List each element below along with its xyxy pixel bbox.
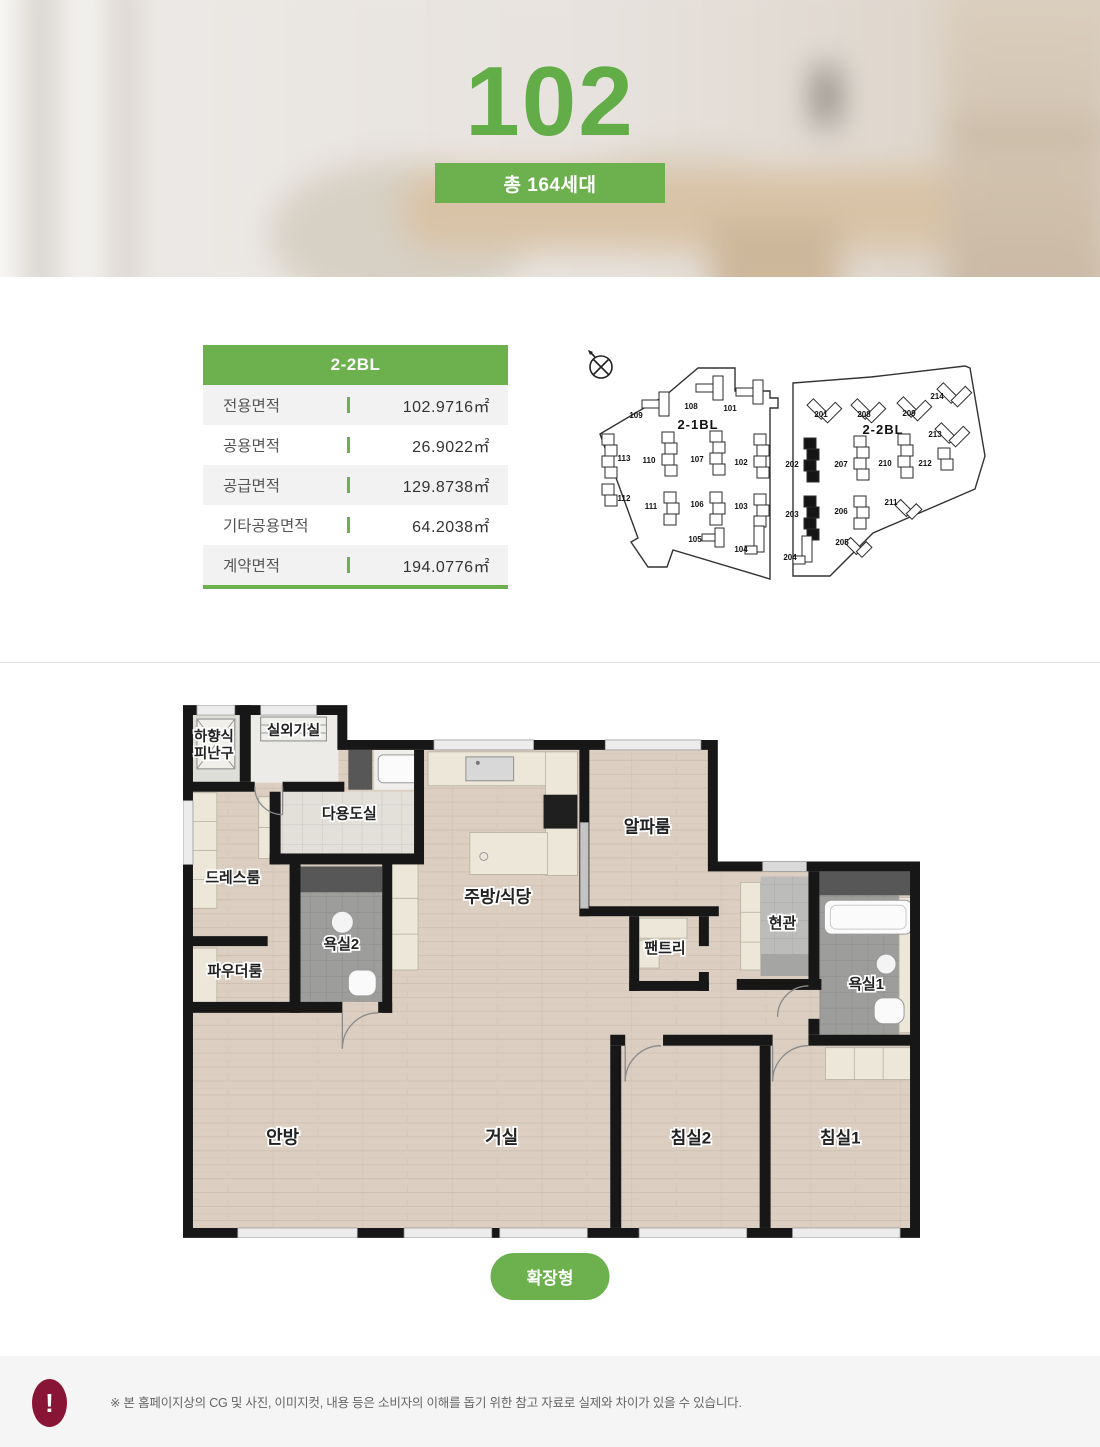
room-label-bath1: 욕실1 xyxy=(848,976,884,993)
building-number-108: 108 xyxy=(684,402,698,411)
room-label-master-bedroom: 안방 xyxy=(266,1127,299,1147)
building-105 xyxy=(702,528,724,547)
cooktop-icon xyxy=(544,795,578,829)
utility-tub-icon xyxy=(378,755,420,783)
site-block-2-1BL: 2-1BL10910810111311010710211211110610310… xyxy=(600,368,778,579)
building-106 xyxy=(710,492,725,525)
room-label-powder-room: 파우더룸 xyxy=(207,963,262,980)
kitchen-sink-icon xyxy=(466,757,514,781)
area-table-body: 전용면적 102.9716㎡ 공용면적 26.9022㎡ 공급면적 129.87… xyxy=(203,385,508,585)
block-name-label: 2-2BL xyxy=(862,422,903,437)
building-number-212: 212 xyxy=(918,459,932,468)
building-212 xyxy=(938,448,953,470)
building-211 xyxy=(895,494,922,521)
room-label-entrance: 현관 xyxy=(769,915,797,932)
building-number-107: 107 xyxy=(690,455,704,464)
building-number-206: 206 xyxy=(834,507,848,516)
building-number-202: 202 xyxy=(785,460,799,469)
block-name-label: 2-1BL xyxy=(677,417,718,432)
building-203 xyxy=(804,496,819,540)
building-109 xyxy=(642,392,669,416)
building-number-205: 205 xyxy=(835,538,849,547)
building-number-112: 112 xyxy=(618,494,631,503)
building-number-204: 204 xyxy=(783,553,797,562)
room-label-dress-room: 드레스룸 xyxy=(205,869,260,886)
building-210 xyxy=(898,434,913,478)
sliding-door xyxy=(580,823,588,909)
building-207 xyxy=(854,436,869,480)
notice-footer: ! ※ 본 홈페이지상의 CG 및 사진, 이미지컷, 내용 등은 소비자의 이… xyxy=(0,1356,1100,1447)
table-row: 공급면적 129.8738㎡ xyxy=(203,465,508,505)
building-111 xyxy=(664,492,679,525)
room-label-bath2: 욕실2 xyxy=(323,936,359,953)
floor-plan: 하향식피난구실외기실다용도실드레스룸파우더룸욕실2주방/식당알파룸팬트리현관욕실… xyxy=(183,705,920,1238)
room-label-alpha-room: 알파룸 xyxy=(624,818,671,837)
section-divider xyxy=(0,662,1100,663)
washbasin-icon xyxy=(876,954,896,974)
building-113 xyxy=(602,434,617,478)
toilet-icon xyxy=(348,970,376,996)
exclamation-icon: ! xyxy=(32,1379,67,1427)
room-label-ac-room: 실외기실 xyxy=(267,721,320,739)
building-214 xyxy=(937,374,972,409)
building-number-207: 207 xyxy=(834,460,848,469)
north-compass-icon xyxy=(588,350,612,378)
building-number-211: 211 xyxy=(885,498,898,507)
building-112 xyxy=(602,484,617,506)
building-number-111: 111 xyxy=(645,502,658,511)
building-number-101: 101 xyxy=(723,404,737,413)
building-number-109: 109 xyxy=(629,411,643,420)
room-label-kitchen-dining: 주방/식당 xyxy=(464,887,531,906)
room-label-utility-room: 다용도실 xyxy=(322,806,377,823)
green-bar-divider xyxy=(347,437,350,453)
table-row: 공용면적 26.9022㎡ xyxy=(203,425,508,465)
room-label-bedroom2: 침실2 xyxy=(671,1127,712,1147)
total-households-badge: 총 164세대 xyxy=(435,163,665,203)
area-value: 194.0776㎡ xyxy=(360,553,508,577)
area-table-header: 2-2BL xyxy=(203,345,508,385)
building-number-102: 102 xyxy=(734,458,748,467)
building-101 xyxy=(736,380,763,404)
area-label: 전용면적 xyxy=(223,394,321,416)
room-label-living-room: 거실 xyxy=(485,1127,518,1147)
building-number-105: 105 xyxy=(688,535,702,544)
area-label: 공용면적 xyxy=(223,434,321,456)
toilet-icon xyxy=(874,998,904,1024)
building-103 xyxy=(754,494,769,527)
building-201 xyxy=(807,390,842,425)
table-row: 계약면적 194.0776㎡ xyxy=(203,545,508,585)
room-label-pantry: 팬트리 xyxy=(644,940,685,957)
entrance-door xyxy=(763,861,807,871)
unit-type-page: 102 총 164세대 2-2BL 전용면적 102.9716㎡ 공용면적 26… xyxy=(0,0,1100,1447)
building-number-106: 106 xyxy=(690,500,704,509)
building-number-104: 104 xyxy=(734,545,748,554)
area-value: 26.9022㎡ xyxy=(360,433,508,457)
green-bar-divider xyxy=(347,557,350,573)
room-label-escape-hatch: 하향식피난구 xyxy=(194,728,234,762)
area-value: 129.8738㎡ xyxy=(360,473,508,497)
building-number-213: 213 xyxy=(928,430,942,439)
building-206 xyxy=(854,496,869,529)
site-block-2-2BL: 2-2BL20120820921421320220721021220320621… xyxy=(783,366,985,576)
building-number-110: 110 xyxy=(643,456,656,465)
green-bar-divider xyxy=(347,477,350,493)
building-108 xyxy=(696,376,723,400)
building-208 xyxy=(851,390,886,425)
building-number-209: 209 xyxy=(902,409,916,418)
green-bar-divider xyxy=(347,397,350,413)
site-plan-map: 2-1BL10910810111311010710211211110610310… xyxy=(578,346,1006,594)
building-number-203: 203 xyxy=(785,510,799,519)
area-value: 102.9716㎡ xyxy=(360,393,508,417)
building-number-210: 210 xyxy=(878,459,892,468)
expand-type-button[interactable]: 확장형 xyxy=(491,1253,610,1300)
building-number-201: 201 xyxy=(814,410,828,419)
area-label: 계약면적 xyxy=(223,554,321,576)
building-107 xyxy=(710,431,725,475)
building-202 xyxy=(804,438,819,482)
washbasin-icon xyxy=(331,911,353,933)
disclaimer-text: ※ 본 홈페이지상의 CG 및 사진, 이미지컷, 내용 등은 소비자의 이해를… xyxy=(110,1356,742,1447)
area-label: 기타공용면적 xyxy=(223,514,321,536)
area-value: 64.2038㎡ xyxy=(360,513,508,537)
hero-banner: 102 총 164세대 xyxy=(0,0,1100,277)
building-number-214: 214 xyxy=(930,392,944,401)
area-table: 2-2BL 전용면적 102.9716㎡ 공용면적 26.9022㎡ 공급면적 … xyxy=(203,345,508,589)
building-number-103: 103 xyxy=(734,502,748,511)
building-205 xyxy=(845,532,872,559)
building-102 xyxy=(754,434,769,478)
building-110 xyxy=(662,432,677,476)
green-bar-divider xyxy=(347,517,350,533)
unit-number-title: 102 xyxy=(0,52,1100,150)
building-number-113: 113 xyxy=(618,454,631,463)
building-104 xyxy=(745,526,764,554)
room-label-bedroom1: 침실1 xyxy=(820,1127,861,1147)
table-row: 전용면적 102.9716㎡ xyxy=(203,385,508,425)
table-row: 기타공용면적 64.2038㎡ xyxy=(203,505,508,545)
area-label: 공급면적 xyxy=(223,474,321,496)
building-number-208: 208 xyxy=(857,410,871,419)
